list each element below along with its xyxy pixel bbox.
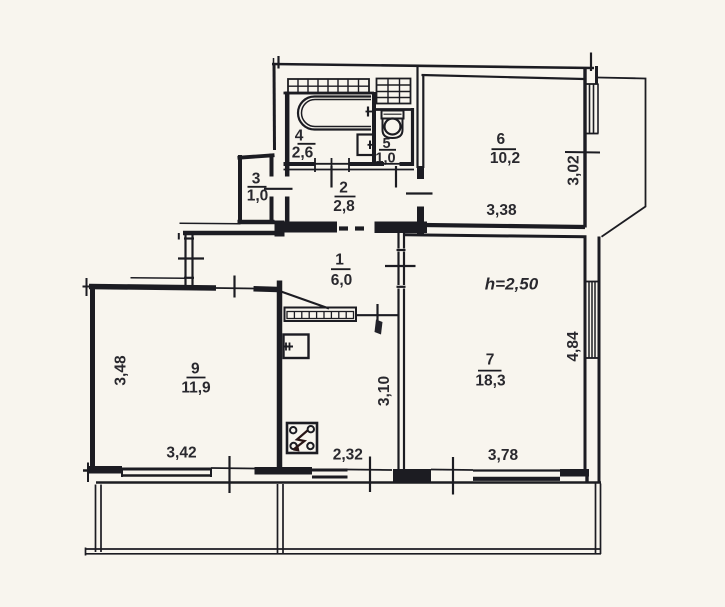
svg-text:h=2,50: h=2,50 <box>485 275 539 294</box>
svg-text:4: 4 <box>295 128 304 145</box>
svg-text:3,42: 3,42 <box>166 445 196 462</box>
svg-text:1,0: 1,0 <box>247 188 269 205</box>
svg-text:3: 3 <box>252 171 261 188</box>
svg-text:3,78: 3,78 <box>488 447 519 464</box>
svg-text:11,9: 11,9 <box>181 380 211 397</box>
svg-text:1,0: 1,0 <box>375 150 395 166</box>
svg-text:2,32: 2,32 <box>333 447 363 464</box>
svg-text:10,2: 10,2 <box>490 150 520 167</box>
svg-text:6: 6 <box>496 131 505 148</box>
svg-text:4,84: 4,84 <box>565 331 582 362</box>
svg-text:1: 1 <box>335 252 344 269</box>
svg-text:7: 7 <box>486 352 495 369</box>
svg-text:3,38: 3,38 <box>486 202 517 219</box>
svg-text:3,48: 3,48 <box>113 355 130 386</box>
svg-text:9: 9 <box>191 361 200 378</box>
svg-text:3,10: 3,10 <box>376 376 393 406</box>
svg-text:18,3: 18,3 <box>475 373 506 390</box>
svg-text:6,0: 6,0 <box>331 272 353 289</box>
svg-text:2,6: 2,6 <box>292 145 314 162</box>
svg-text:2,8: 2,8 <box>333 198 355 215</box>
svg-text:3,02: 3,02 <box>566 155 583 185</box>
svg-text:2: 2 <box>339 180 348 197</box>
